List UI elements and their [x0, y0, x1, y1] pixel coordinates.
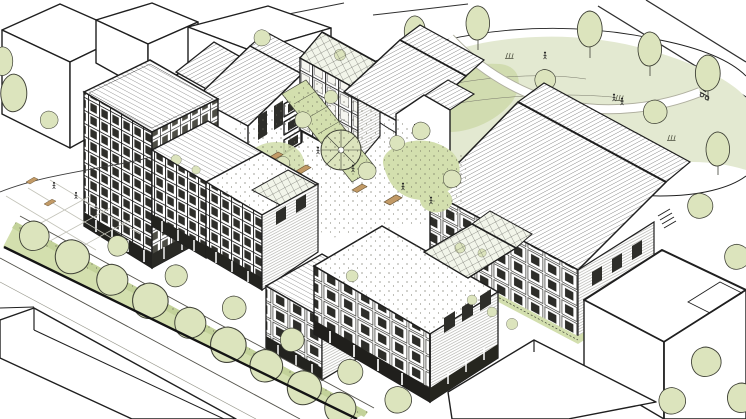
tree	[254, 30, 270, 46]
roof-planting	[192, 166, 200, 174]
pedestrian	[75, 192, 78, 199]
architectural-illustration: Axonometric architectural sketch of a re…	[0, 0, 746, 419]
external-stair	[658, 209, 676, 228]
axonometric-drawing: Axonometric architectural sketch of a re…	[0, 0, 746, 419]
tree	[725, 244, 746, 269]
roof-planting	[346, 270, 358, 282]
bench	[44, 199, 56, 206]
